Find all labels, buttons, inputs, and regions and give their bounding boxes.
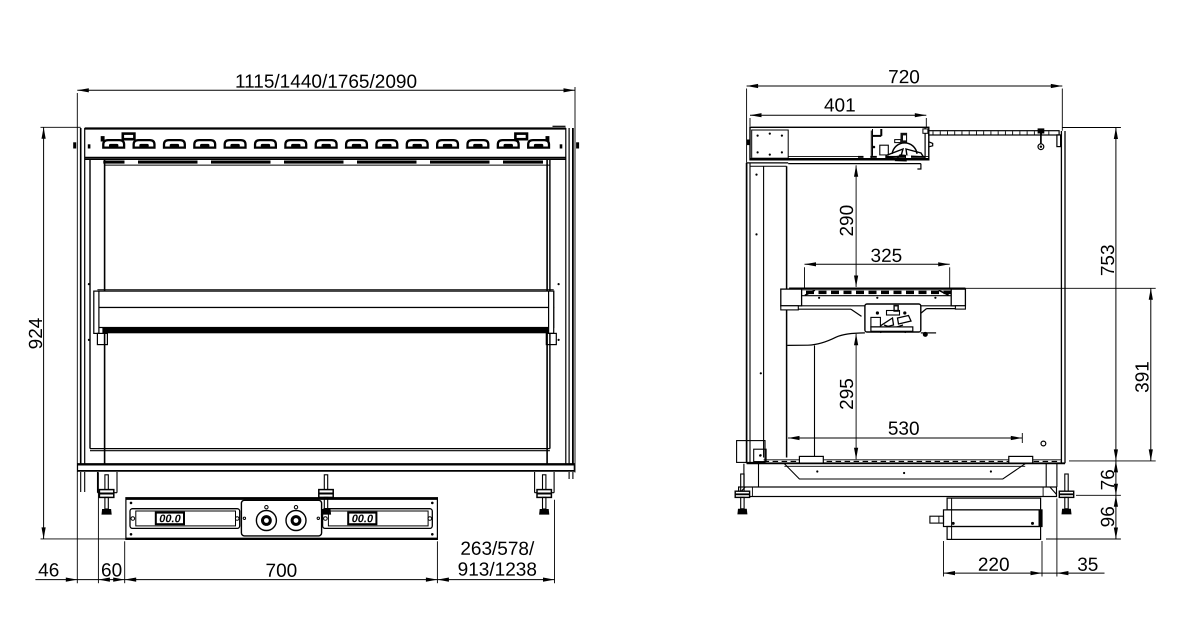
svg-text:35: 35 [1077, 555, 1098, 576]
svg-text:263/578/: 263/578/ [460, 539, 535, 560]
svg-text:913/1238: 913/1238 [458, 560, 537, 581]
svg-text:924: 924 [26, 317, 47, 349]
svg-text:60: 60 [101, 560, 122, 581]
svg-text:220: 220 [978, 555, 1010, 576]
svg-text:720: 720 [888, 67, 920, 88]
svg-text:76: 76 [1098, 469, 1119, 490]
svg-text:753: 753 [1098, 244, 1119, 276]
svg-text:295: 295 [837, 378, 858, 410]
svg-text:96: 96 [1098, 506, 1119, 527]
svg-text:325: 325 [871, 246, 903, 267]
svg-text:391: 391 [1133, 361, 1154, 393]
svg-text:700: 700 [266, 561, 298, 582]
svg-text:00.0: 00.0 [352, 513, 374, 525]
svg-text:1115/1440/1765/2090: 1115/1440/1765/2090 [235, 72, 417, 93]
svg-text:290: 290 [837, 205, 858, 237]
svg-text:530: 530 [888, 419, 920, 440]
svg-text:401: 401 [824, 95, 856, 116]
svg-text:46: 46 [38, 560, 59, 581]
svg-text:00.0: 00.0 [159, 513, 181, 525]
